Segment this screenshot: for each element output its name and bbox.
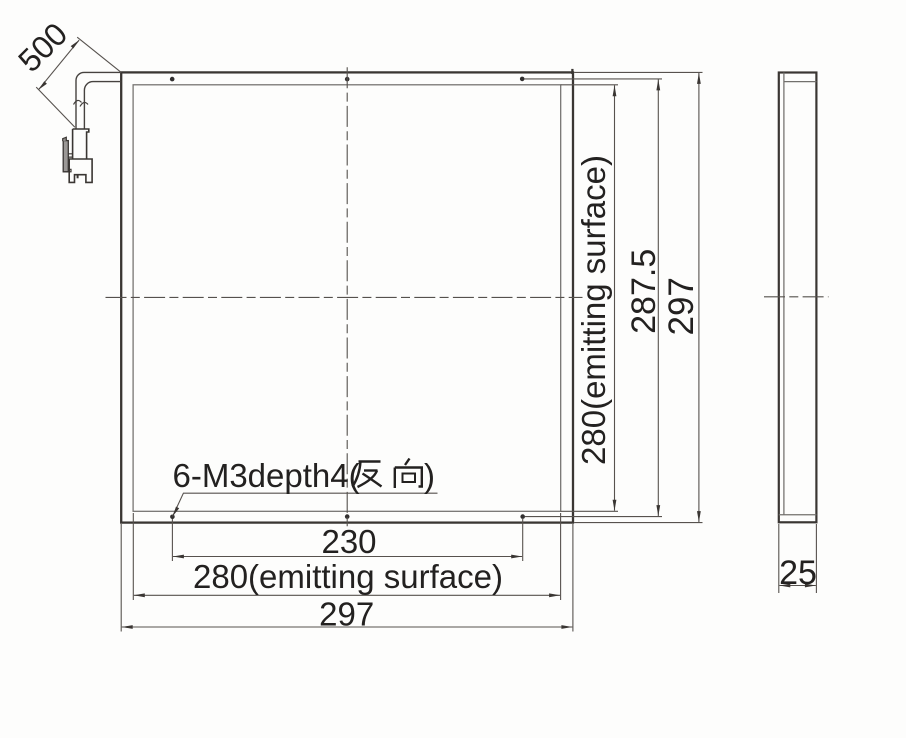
svg-text:287.5: 287.5	[625, 249, 663, 334]
svg-text:297: 297	[319, 595, 374, 632]
svg-text:280(emitting surface): 280(emitting surface)	[193, 558, 503, 595]
svg-text:25: 25	[779, 554, 817, 592]
svg-text:6-M3depth4(: 6-M3depth4(	[173, 457, 360, 494]
svg-text:297: 297	[662, 277, 701, 335]
svg-text:): )	[424, 457, 435, 494]
svg-text:280(emitting surface): 280(emitting surface)	[575, 155, 612, 465]
svg-text:230: 230	[321, 523, 376, 560]
